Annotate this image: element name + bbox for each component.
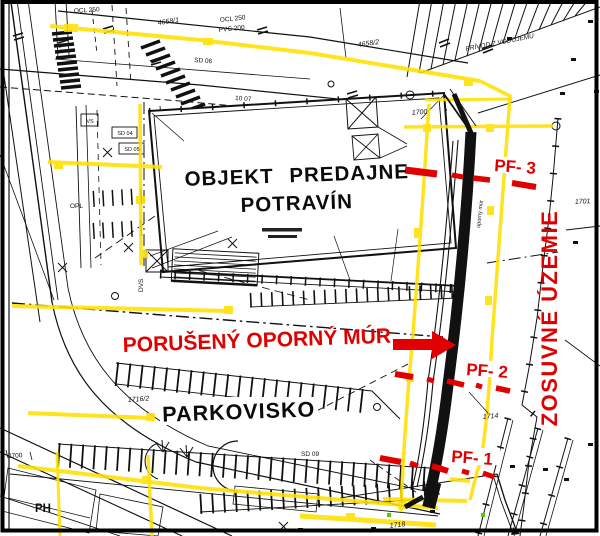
- wall-note-label: oporný múr: [476, 200, 485, 228]
- building-label-line2: POTRAVÍN: [240, 190, 353, 217]
- parcel-number-1714: 1714: [483, 413, 499, 421]
- label-opl: OPL: [70, 203, 83, 210]
- site-plan: OBJEKT PREDAJNE POTRAVÍN PARKOVISKO PORU…: [0, 0, 600, 536]
- box-label-sd04: SD 04: [117, 131, 132, 137]
- probe-pf3-label: PF- 3: [494, 156, 537, 178]
- probe-pf1-label: PF- 1: [451, 447, 494, 469]
- parcel-number-1701: 1701: [575, 198, 591, 206]
- parcel-number-2700: 2700: [8, 452, 23, 460]
- landslide-area-label: ZOSUVNÉ ÚZEMIE: [537, 210, 562, 427]
- box-label-sd05: SD 05: [124, 147, 139, 153]
- water-supply-label: PRÍVOD Z VODOJEMU: [465, 31, 535, 53]
- hatch-band-diagonal: [141, 41, 210, 118]
- shaft-label-sd09: SD 09: [301, 451, 319, 458]
- pipe-label-ocl-top: OCL 250: [74, 6, 101, 15]
- parcel-number-1700: 1700: [412, 109, 428, 117]
- shaft-label-sd06: SD 06: [194, 57, 213, 65]
- marker-dot: [387, 513, 391, 517]
- pipe-label-ocl: OCL 250: [219, 14, 246, 24]
- box-label-vs: VS: [86, 119, 94, 125]
- site-plan-drawing: OBJEKT PREDAJNE POTRAVÍN PARKOVISKO PORU…: [0, 0, 600, 536]
- hydrant-label: PH: [35, 503, 51, 515]
- label-dvs: DVS: [138, 278, 145, 292]
- tree-icon: [156, 440, 193, 457]
- pipe-label-pvc: PVC 200: [218, 24, 245, 34]
- probe-pf2-label: PF- 2: [466, 360, 509, 382]
- parcel-number-1716-2: 1716/2: [128, 396, 150, 404]
- station-label-1007: 10 07: [235, 95, 252, 103]
- marker-dot: [481, 513, 485, 517]
- parcel-number-4658-1: 4658/1: [157, 17, 179, 27]
- damaged-wall-label: PORUŠENÝ OPORNÝ MÚR: [122, 324, 391, 357]
